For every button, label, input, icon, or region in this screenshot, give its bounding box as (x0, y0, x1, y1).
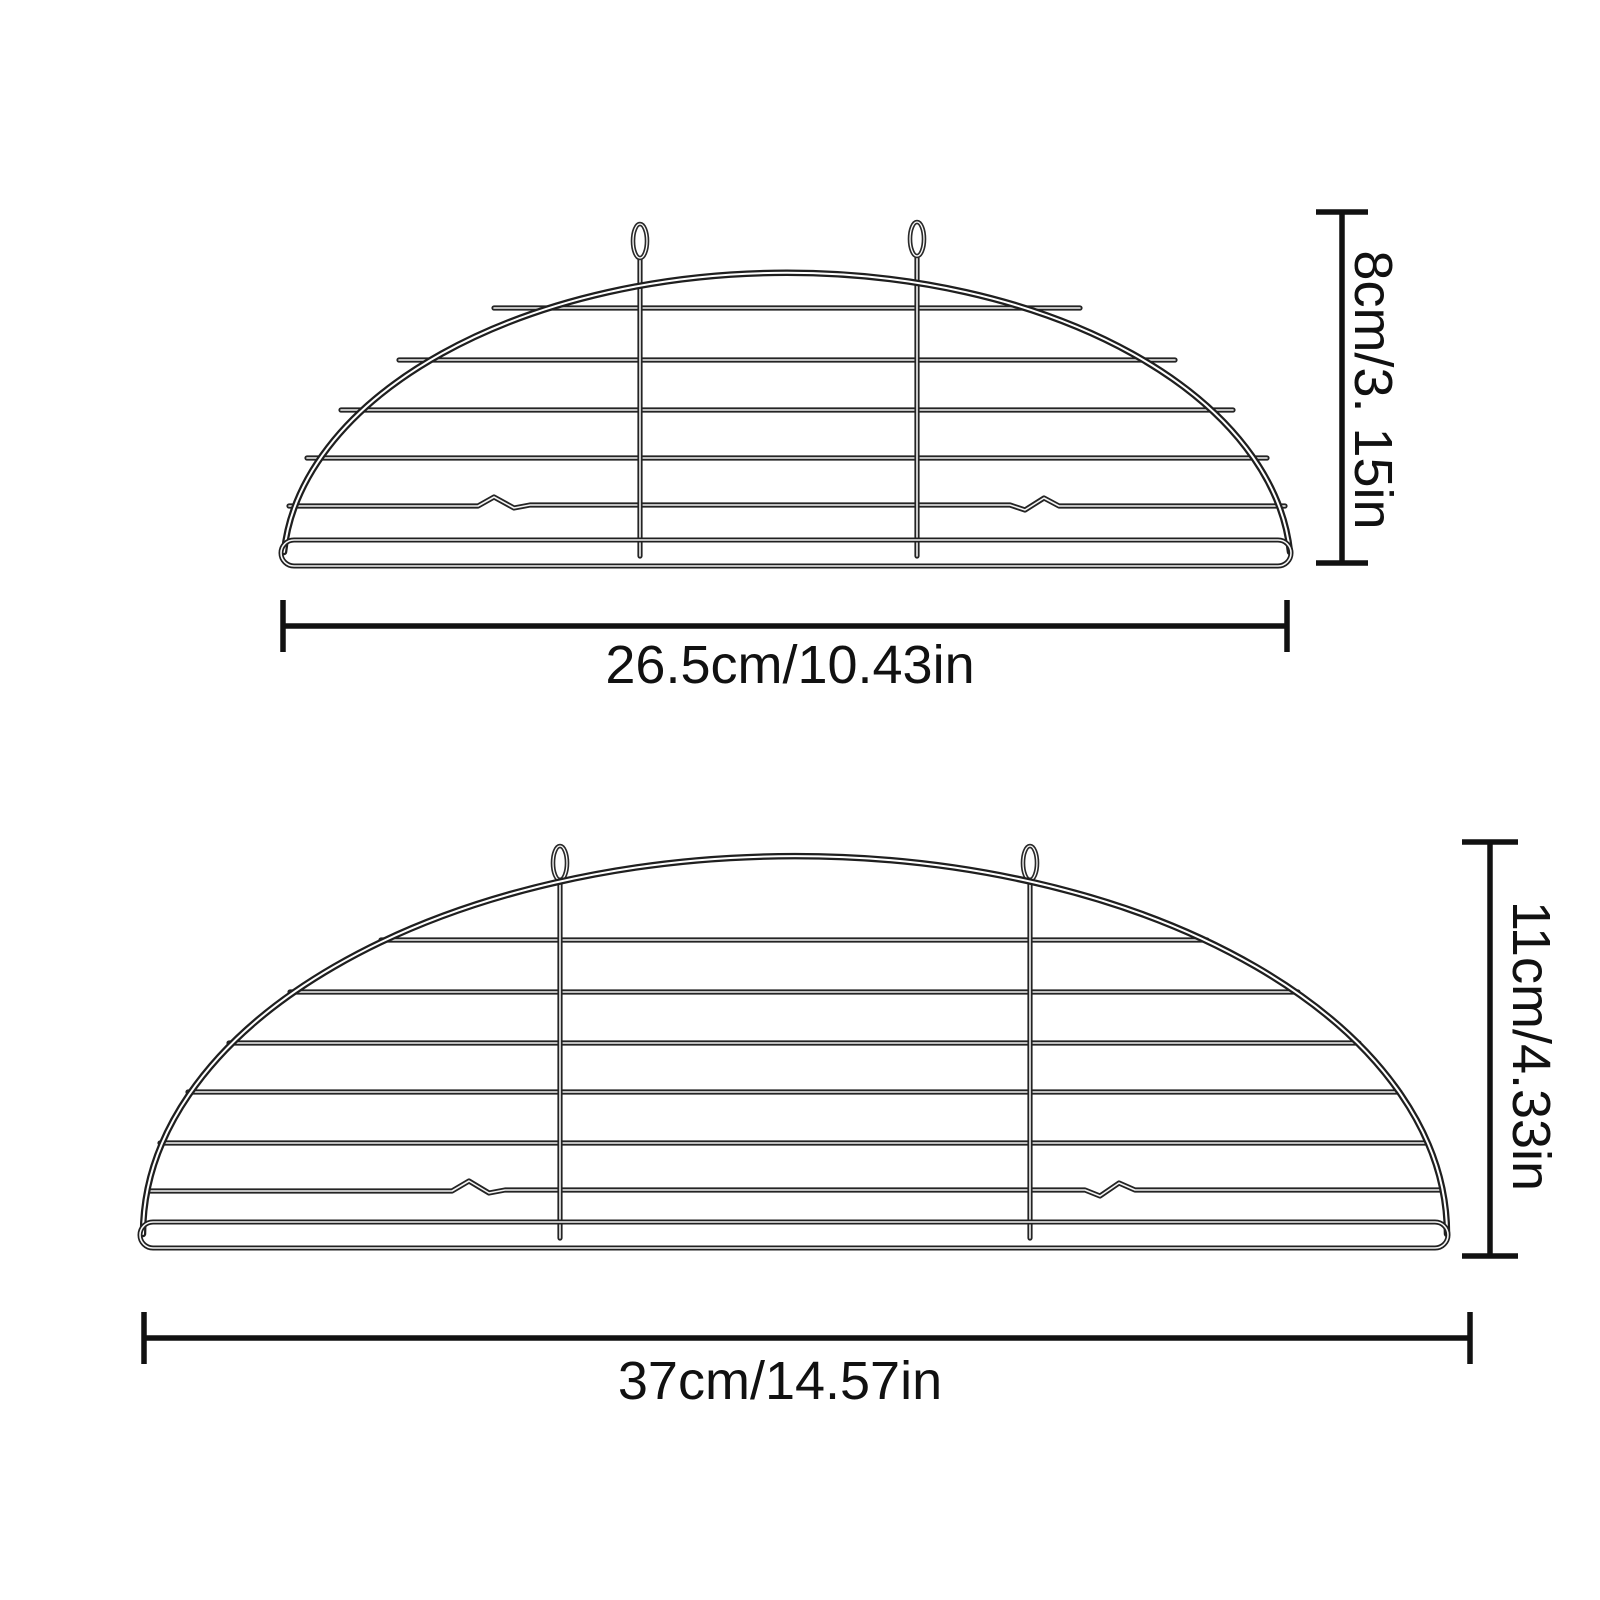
small-rack-width-label: 26.5cm/10.43in (460, 636, 1120, 694)
large-rack-hanging-hooks (553, 846, 1037, 880)
large-rack-height-label: 11cm/4.33in (1502, 876, 1560, 1216)
product-dimension-diagram: 26.5cm/10.43in 8cm/3. 15in 37cm/14.57in … (0, 0, 1600, 1600)
small-rack-frame (281, 273, 1291, 566)
large-rack-illustration (140, 846, 1448, 1248)
small-rack-illustration (281, 222, 1291, 566)
large-rack-width-label: 37cm/14.57in (450, 1352, 1110, 1410)
small-rack-height-label: 8cm/3. 15in (1344, 240, 1402, 540)
large-rack-grid-wires (147, 880, 1441, 1238)
small-rack-hanging-hooks (633, 222, 924, 258)
small-rack-grid-wires (289, 257, 1285, 556)
